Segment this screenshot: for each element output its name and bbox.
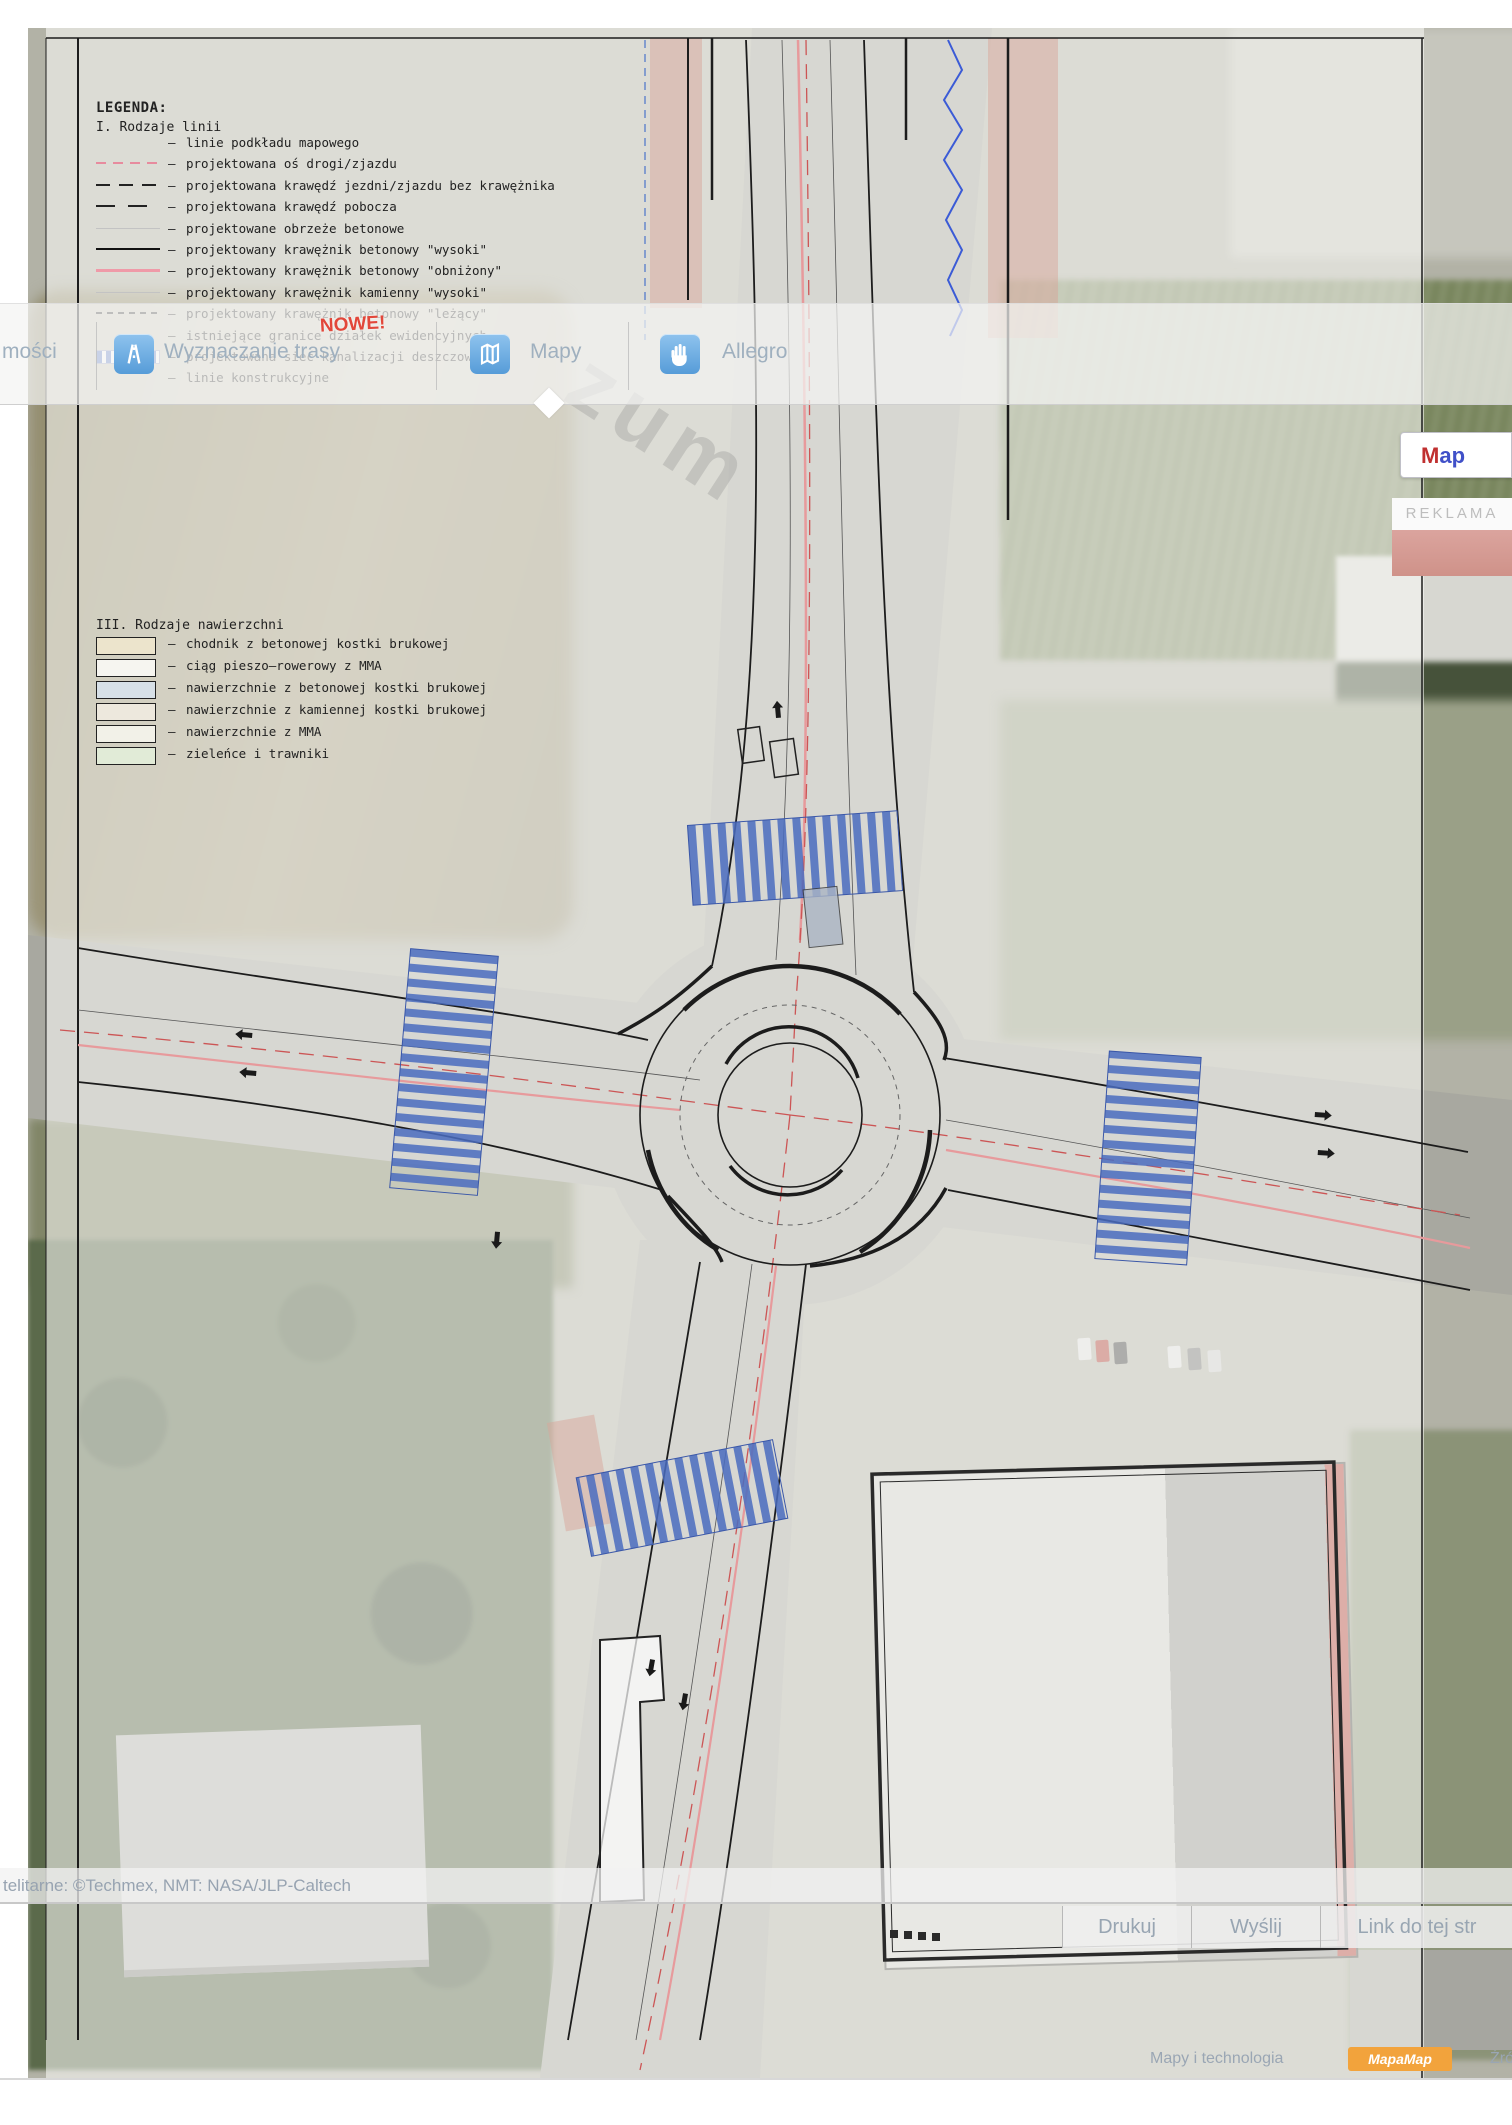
legend-line-item: – projektowany krawężnik betonowy "obniż… — [96, 263, 656, 284]
legend-surface-item: – nawierzchnie z MMA — [96, 724, 656, 746]
link-to-page-button[interactable]: Link do tej str — [1321, 1906, 1512, 1948]
legend-line-swatch — [96, 285, 160, 299]
source-link-cut[interactable]: Źró — [1490, 2050, 1512, 2068]
toolbar-separator — [436, 322, 437, 390]
legend-line-item: – linie podkładu mapowego — [96, 135, 656, 156]
legend-surface-swatch — [96, 659, 156, 677]
legend-marker: – — [168, 724, 176, 739]
legend-line-item: – projektowane obrzeże betonowe — [96, 221, 656, 242]
legend-line-label: projektowana krawędź jezdni/zjazdu bez k… — [186, 178, 555, 193]
legend-line-label: projektowany krawężnik kamienny "wysoki" — [186, 285, 487, 300]
legend-surface-label: nawierzchnie z kamiennej kostki brukowej — [186, 702, 487, 717]
legend-line-item: – projektowana oś drogi/zjazdu — [96, 156, 656, 177]
bottom-bar: Mapy i technologia MapaMap Źró — [0, 2046, 1512, 2076]
legend-marker: – — [168, 746, 176, 761]
legend-surface-item: – zieleńce i trawniki — [96, 746, 656, 768]
legend-marker: – — [168, 263, 176, 278]
action-buttons-bar: Drukuj Wyślij Link do tej str — [1062, 1906, 1512, 1948]
legend-surface-item: – chodnik z betonowej kostki brukowej — [96, 636, 656, 658]
legend-marker: – — [168, 658, 176, 673]
legend-line-swatch — [96, 242, 160, 256]
legend-line-item: – projektowany krawężnik betonowy "wysok… — [96, 242, 656, 263]
legend-line-label: projektowany krawężnik betonowy "wysoki" — [186, 242, 487, 257]
legend-title: III. Rodzaje nawierzchni — [96, 618, 656, 633]
map-icon[interactable] — [470, 334, 510, 374]
hand-icon[interactable] — [660, 334, 700, 374]
legend-surface-label: chodnik z betonowej kostki brukowej — [186, 636, 449, 651]
legend-surface-label: nawierzchnie z betonowej kostki brukowej — [186, 680, 487, 695]
send-button[interactable]: Wyślij — [1192, 1906, 1321, 1948]
legend-surface-swatch — [96, 747, 156, 765]
legend-line-swatch — [96, 263, 160, 277]
nav-item-route[interactable]: Wyznaczanie trasy — [164, 340, 340, 364]
legend-line-label: projektowany krawężnik betonowy "obniżon… — [186, 263, 502, 278]
legend-line-item: – projektowana krawędź jezdni/zjazdu bez… — [96, 178, 656, 199]
legend-surface-swatch — [96, 725, 156, 743]
legend-line-swatch — [96, 156, 160, 170]
legend-surface-types: III. Rodzaje nawierzchni – chodnik z bet… — [96, 614, 656, 768]
legend-line-label: projektowana oś drogi/zjazdu — [186, 156, 397, 171]
technology-label: Mapy i technologia — [1150, 2050, 1283, 2068]
map-product-button[interactable]: Map — [1400, 432, 1512, 478]
legend-line-swatch — [96, 178, 160, 192]
page: zum LEGENDA: I. Rodzaje linii – linie po… — [0, 0, 1512, 2125]
nav-item-cut[interactable]: mości — [2, 340, 57, 364]
top-toolbar: mości Wyznaczanie trasy NOWE! Mapy Alleg… — [0, 303, 1512, 405]
legend-marker: – — [168, 178, 176, 193]
legend-line-swatch — [96, 221, 160, 235]
legend-surface-label: nawierzchnie z MMA — [186, 724, 321, 739]
legend-marker: – — [168, 285, 176, 300]
nav-item-maps[interactable]: Mapy — [530, 340, 581, 364]
legend-surface-swatch — [96, 703, 156, 721]
reklama-label: REKLAMA — [1392, 498, 1512, 530]
legend-line-swatch — [96, 135, 160, 149]
legend-surface-label: zieleńce i trawniki — [186, 746, 329, 761]
legend-surface-item: – nawierzchnie z betonowej kostki brukow… — [96, 680, 656, 702]
legend-line-label: projektowane obrzeże betonowe — [186, 221, 404, 236]
legend-line-item: – projektowana krawędź pobocza — [96, 199, 656, 220]
legend-marker: – — [168, 156, 176, 171]
legend-line-label: projektowana krawędź pobocza — [186, 199, 397, 214]
toolbar-separator — [628, 322, 629, 390]
legend-surface-label: ciąg pieszo–rowerowy z MMA — [186, 658, 382, 673]
legend-marker: – — [168, 221, 176, 236]
advertisement[interactable] — [1392, 530, 1512, 576]
new-badge: NOWE! — [319, 312, 385, 337]
legend-title: LEGENDA: — [96, 100, 656, 116]
print-button[interactable]: Drukuj — [1063, 1906, 1192, 1948]
nav-item-allegro[interactable]: Allegro — [722, 340, 787, 364]
legend-marker: – — [168, 242, 176, 257]
legend-subtitle: I. Rodzaje linii — [96, 120, 656, 135]
map-attribution: telitarne: ©Techmex, NMT: NASA/JLP-Calte… — [0, 1868, 1512, 1904]
legend-line-label: linie podkładu mapowego — [186, 135, 359, 150]
legend-surface-swatch — [96, 637, 156, 655]
legend-marker: – — [168, 680, 176, 695]
legend-surface-item: – nawierzchnie z kamiennej kostki brukow… — [96, 702, 656, 724]
legend-surface-swatch — [96, 681, 156, 699]
page-margin-bottom — [0, 2078, 1512, 2125]
page-margin-top — [0, 0, 1512, 28]
legend-marker: – — [168, 702, 176, 717]
legend-marker: – — [168, 636, 176, 651]
legend-marker: – — [168, 199, 176, 214]
mapamap-logo[interactable]: MapaMap — [1348, 2047, 1452, 2071]
legend-line-swatch — [96, 199, 160, 213]
legend-marker: – — [168, 135, 176, 150]
route-icon[interactable] — [114, 334, 154, 374]
toolbar-separator — [96, 322, 97, 390]
legend-surface-item: – ciąg pieszo–rowerowy z MMA — [96, 658, 656, 680]
